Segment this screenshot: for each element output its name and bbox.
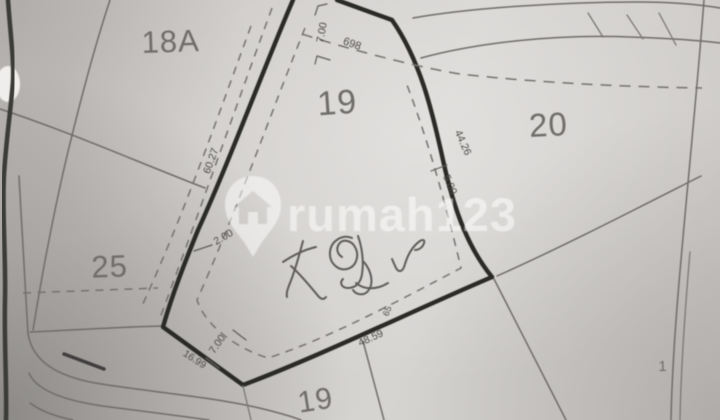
divider-19b-east [494,279,566,420]
frame-line-right [671,0,704,420]
frontage-tick-3 [659,13,676,45]
block-line-top2 [421,36,720,58]
parcel19-boundary-bottom [243,277,492,385]
parcel-label-1-partial: 1 [658,358,667,375]
dimension-left-setback: 2.00 [212,227,236,248]
house-pin-icon [225,176,281,257]
frontage-tick-1 [588,13,603,37]
dimension-bottom-side: 48.59 [356,327,385,349]
cable-line [3,0,13,420]
divider-19b-west [363,341,384,420]
frontage-tick-2 [627,15,643,39]
divider-18a-25 [0,109,205,188]
dim-tick-200 [194,245,212,251]
site-plan-photo: 18A 19 20 25 19 1 7.00 698 60.27 2.00 44… [0,0,720,420]
road-edge-left [19,176,28,334]
parcel-label-25: 25 [91,248,129,284]
parcel-label-18a: 18A [141,23,200,60]
dimension-left-side: 60.27 [201,146,221,175]
dimension-parcel-no: 698 [341,35,362,53]
dim-tick-700b-b [206,358,219,368]
frame-line-right2 [680,252,690,420]
road-curve-middle [29,373,209,420]
road-dark-mark [64,354,104,369]
dimension-right-side: 44.26 [452,128,474,157]
cable-overlay [0,0,20,420]
dim-tick-700b-a [233,330,246,340]
road-curve-inner [30,403,73,420]
plot25-dashed-line [23,288,158,293]
dimension-bottom-mark: 65 [381,305,394,318]
block-line-top1 [413,2,720,18]
divider-20-south [497,176,701,276]
setback-dashed-outer2 [141,26,251,308]
parcel-label-19-bottom: 19 [295,382,335,420]
parcel-label-20: 20 [528,105,569,144]
divider-19b-left-edge [243,386,251,420]
site-plan-drawing: 18A 19 20 25 19 1 7.00 698 60.27 2.00 44… [0,0,720,420]
dim-tick-top-b [315,56,330,64]
signature-scribble [283,236,424,299]
brand-watermark-text: rumah123 [287,188,517,241]
dim-tick-top-a [315,4,327,15]
dimension-top-setback: 7.00 [314,21,329,43]
plot25-bottom-line [30,326,161,332]
parcel-label-19-top: 19 [316,83,358,124]
